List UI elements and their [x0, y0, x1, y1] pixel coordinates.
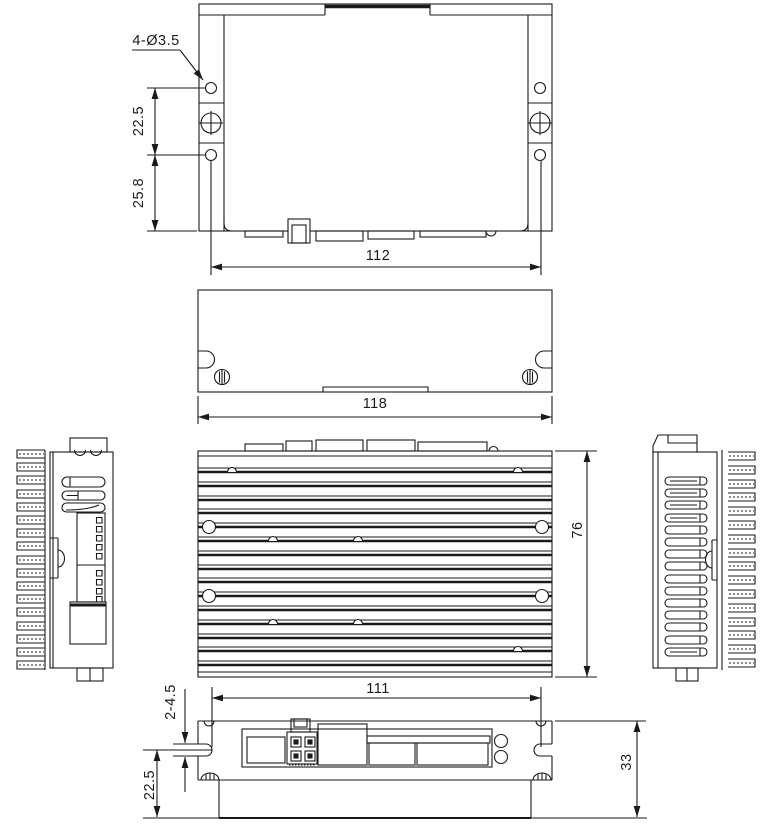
dim-label-overall-depth: 76 [571, 521, 586, 538]
dim-label-hole-callout: 4-Ø3.5 [132, 34, 179, 49]
fin-hatch [729, 456, 754, 663]
fin-hatch [19, 454, 44, 665]
dim-label-slot-to-base: 22.5 [143, 770, 158, 800]
heatsink-plan-view [198, 440, 552, 677]
dim-label-hole-pitch: 22.5 [132, 106, 147, 136]
drawing-canvas [0, 0, 776, 828]
dim-label-hole-edge-offset: 25.8 [132, 178, 147, 208]
front-view [173, 719, 552, 818]
dim-label-overall-width: 118 [363, 397, 388, 412]
fin-lines-thin [198, 456, 552, 672]
fin-lines-thick [198, 472, 552, 665]
dim-label-slot-span: 111 [366, 682, 390, 697]
dim-label-overall-height: 33 [620, 753, 635, 770]
right-side-view [653, 435, 755, 681]
top-view [199, 4, 552, 243]
drawing-page: 4-Ø3.5 22.5 25.8 112 118 76 111 2-4.5 22… [0, 0, 776, 828]
left-side-view [17, 438, 113, 681]
dim-label-hole-span: 112 [366, 249, 391, 264]
dimension-lines [132, 50, 647, 818]
dim-label-slot-callout: 2-4.5 [164, 684, 179, 720]
rear-view [198, 290, 552, 392]
